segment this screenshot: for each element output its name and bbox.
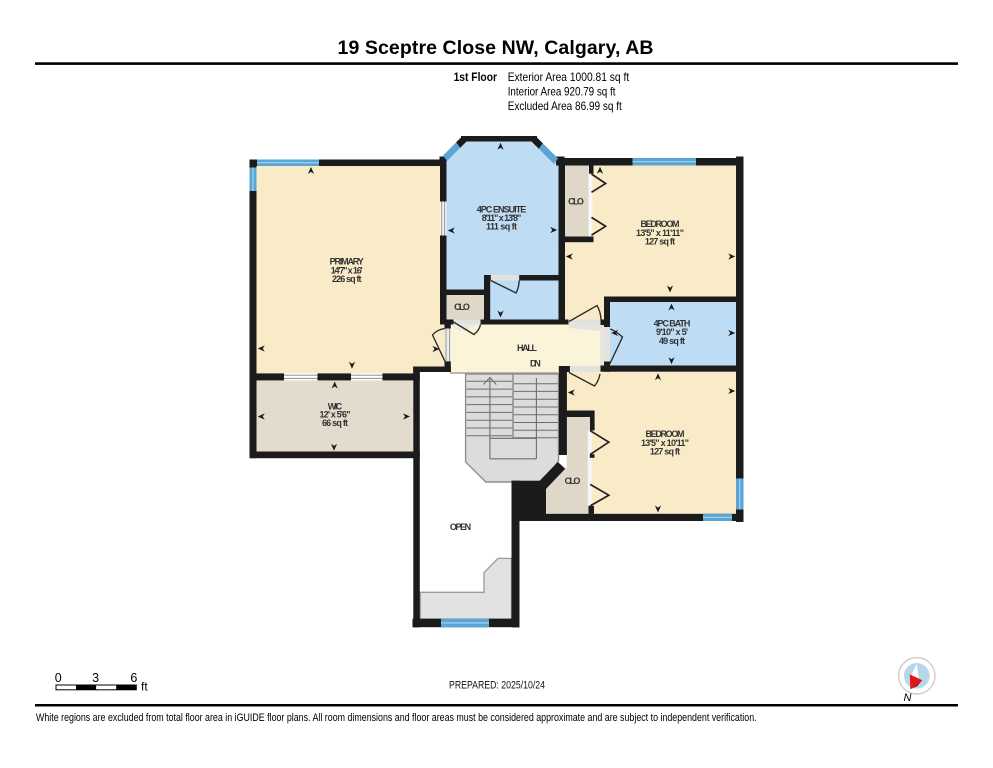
svg-text:1st Floor: 1st Floor <box>454 70 498 84</box>
svg-text:OPEN: OPEN <box>450 522 471 532</box>
svg-text:PREPARED: 2025/10/24: PREPARED: 2025/10/24 <box>449 679 545 691</box>
svg-text:226 sq ft: 226 sq ft <box>332 274 362 284</box>
svg-text:Excluded Area 86.99 sq ft: Excluded Area 86.99 sq ft <box>508 99 623 113</box>
svg-text:CLO: CLO <box>565 476 581 486</box>
svg-text:0: 0 <box>55 671 62 685</box>
svg-text:19 Sceptre Close NW, Calgary,: 19 Sceptre Close NW, Calgary, AB <box>338 37 654 59</box>
svg-text:Interior Area 920.79 sq ft: Interior Area 920.79 sq ft <box>508 85 616 99</box>
svg-text:127 sq ft: 127 sq ft <box>650 447 680 457</box>
svg-text:127 sq ft: 127 sq ft <box>645 237 675 247</box>
svg-text:ft: ft <box>141 680 148 694</box>
svg-text:111 sq ft: 111 sq ft <box>486 222 517 232</box>
svg-text:CLO: CLO <box>454 302 470 312</box>
svg-text:CLO: CLO <box>568 197 584 207</box>
svg-text:3: 3 <box>92 671 99 685</box>
svg-text:Exterior Area 1000.81 sq ft: Exterior Area 1000.81 sq ft <box>508 70 630 84</box>
svg-text:DN: DN <box>530 359 541 369</box>
svg-text:66 sq ft: 66 sq ft <box>322 418 348 428</box>
svg-text:6: 6 <box>130 671 137 685</box>
svg-text:HALL: HALL <box>517 343 537 353</box>
svg-text:N: N <box>904 692 912 704</box>
svg-text:White regions are excluded fro: White regions are excluded from total fl… <box>36 712 757 724</box>
svg-text:49 sq ft: 49 sq ft <box>659 336 685 346</box>
